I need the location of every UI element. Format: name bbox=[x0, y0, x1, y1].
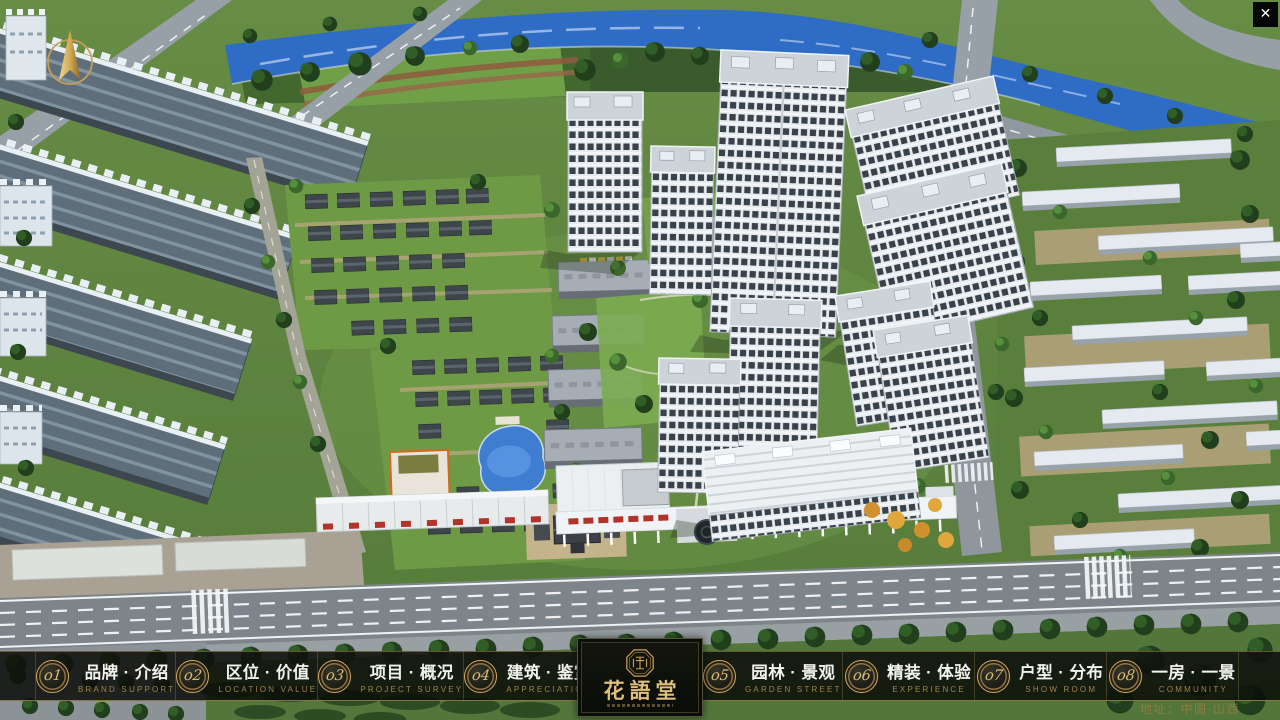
nav-item-sublabel: PROJECT SURVEY bbox=[360, 685, 463, 694]
nav-item-label: 精装 · 体验 bbox=[887, 659, 971, 683]
nav-item-label: 户型 · 分布 bbox=[1019, 659, 1103, 683]
nav-number-badge: o2 bbox=[176, 660, 209, 693]
navbar-tail bbox=[1238, 652, 1280, 700]
nav-number-badge: o6 bbox=[845, 660, 878, 693]
nav-item-label: 项目 · 概况 bbox=[370, 659, 454, 683]
nav-number-badge: o7 bbox=[977, 660, 1010, 693]
nav-item-location-value[interactable]: o2 区位 · 价值LOCATION VALUE bbox=[175, 652, 317, 700]
tower bbox=[709, 50, 849, 337]
nav-item-label: 品牌 · 介绍 bbox=[85, 659, 169, 683]
nav-section-right: o5 园林 · 景观GARDEN STREET o6 精装 · 体验EXPERI… bbox=[702, 652, 1238, 700]
nav-number-badge: o8 bbox=[1109, 660, 1142, 693]
bottom-navbar: o1 品牌 · 介绍BRAND SUPPORT o2 区位 · 价值LOCATI… bbox=[0, 651, 1280, 701]
nav-item-project-overview[interactable]: o3 项目 · 概况PROJECT SURVEY bbox=[317, 652, 463, 700]
nav-section-left: o1 品牌 · 介绍BRAND SUPPORT o2 区位 · 价值LOCATI… bbox=[35, 652, 578, 700]
tower bbox=[648, 146, 715, 295]
nav-item-sublabel: GARDEN STREET bbox=[745, 685, 842, 694]
tower bbox=[567, 92, 643, 252]
aerial-masterplan-render bbox=[0, 0, 1280, 720]
brand-title: 花語堂 bbox=[599, 680, 682, 701]
amenity-building bbox=[390, 450, 450, 498]
nav-item-sublabel: COMMUNITY bbox=[1159, 685, 1228, 694]
nav-item-room-view[interactable]: o8 一房 · 一景COMMUNITY bbox=[1106, 652, 1238, 700]
nav-number-badge: o1 bbox=[36, 660, 69, 693]
brand-logo-panel[interactable]: 花語堂 bbox=[577, 638, 703, 717]
brand-tagline-decoration bbox=[607, 704, 673, 707]
nav-item-interior-experience[interactable]: o6 精装 · 体验EXPERIENCE bbox=[842, 652, 974, 700]
presentation-stage: ✕ o1 品牌 · 介绍BRAND SUPPORT o2 区位 · 价值LOCA… bbox=[0, 0, 1280, 720]
nav-item-label: 园林 · 景观 bbox=[751, 659, 835, 683]
project-address: 地址：中国·山西 bbox=[1140, 700, 1240, 717]
close-button[interactable]: ✕ bbox=[1253, 2, 1278, 27]
nav-item-sublabel: EXPERIENCE bbox=[892, 685, 966, 694]
nav-item-sublabel: BRAND SUPPORT bbox=[78, 685, 175, 694]
brand-seal-icon bbox=[626, 649, 654, 677]
nav-item-architecture[interactable]: o4 建筑 · 鉴赏APPRECIATION bbox=[463, 652, 591, 700]
nav-item-label: 一房 · 一景 bbox=[1151, 659, 1235, 683]
nav-number-badge: o3 bbox=[318, 660, 351, 693]
nav-item-brand-intro[interactable]: o1 品牌 · 介绍BRAND SUPPORT bbox=[35, 652, 175, 700]
nav-item-sublabel: LOCATION VALUE bbox=[218, 685, 317, 694]
nav-item-sublabel: SHOW ROOM bbox=[1025, 685, 1097, 694]
nav-item-floorplan-distribution[interactable]: o7 户型 · 分布SHOW ROOM bbox=[974, 652, 1106, 700]
nav-number-badge: o4 bbox=[464, 660, 497, 693]
nav-number-badge: o5 bbox=[703, 660, 736, 693]
nav-item-landscape[interactable]: o5 园林 · 景观GARDEN STREET bbox=[702, 652, 842, 700]
nav-item-label: 区位 · 价值 bbox=[226, 659, 310, 683]
